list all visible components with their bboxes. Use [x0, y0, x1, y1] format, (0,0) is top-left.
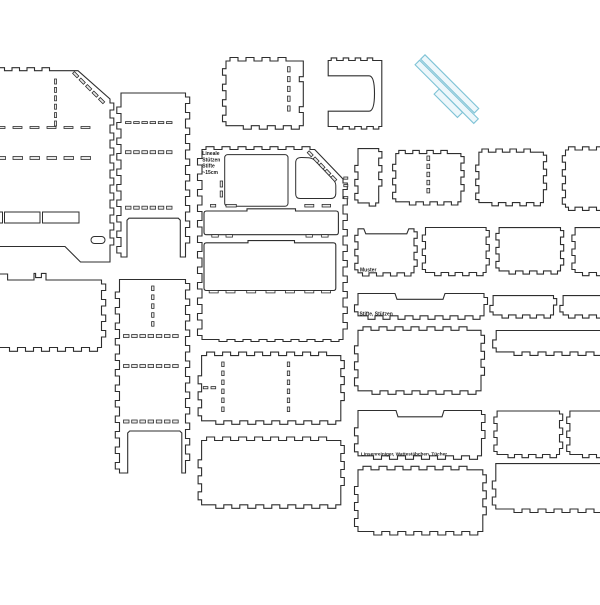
svg-text:Muster: Muster — [360, 267, 376, 273]
svg-text:Stützen: Stützen — [202, 157, 220, 163]
svg-text:Stifte: Stifte — [202, 164, 215, 170]
svg-text:Linsenreiniger, Wattestäbchen,: Linsenreiniger, Wattestäbchen, Tücher — [361, 451, 447, 456]
svg-text:Lineale: Lineale — [202, 151, 219, 157]
svg-text:~15cm: ~15cm — [202, 170, 218, 176]
svg-text:Stifte, Stützen: Stifte, Stützen — [360, 311, 393, 317]
